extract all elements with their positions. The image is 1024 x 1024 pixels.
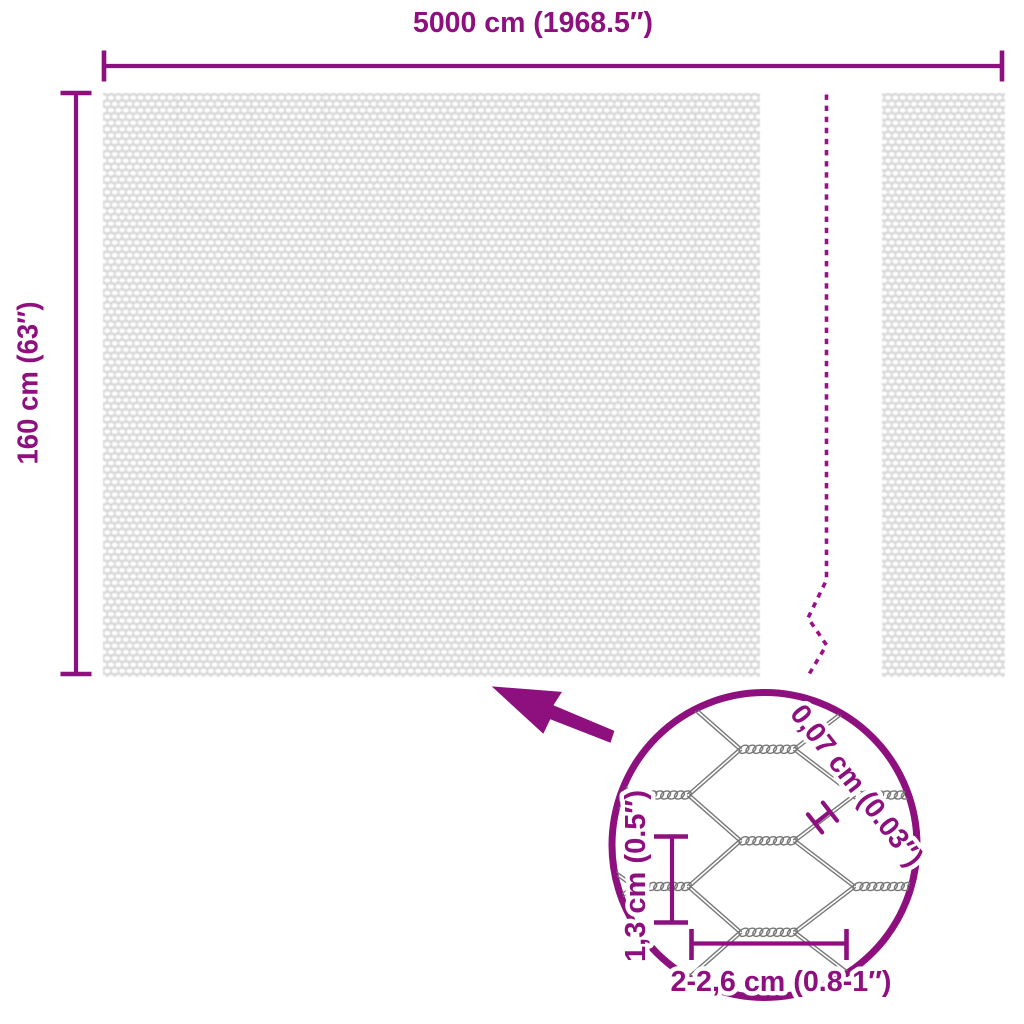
svg-text:160 cm (63″): 160 cm (63″) [13,302,45,465]
svg-text:5000 cm (1968.5″): 5000 cm (1968.5″) [413,7,653,39]
svg-text:2-2,6 cm (0.8-1″): 2-2,6 cm (0.8-1″) [671,966,892,998]
svg-text:1,3 cm (0.5″): 1,3 cm (0.5″) [620,790,652,962]
